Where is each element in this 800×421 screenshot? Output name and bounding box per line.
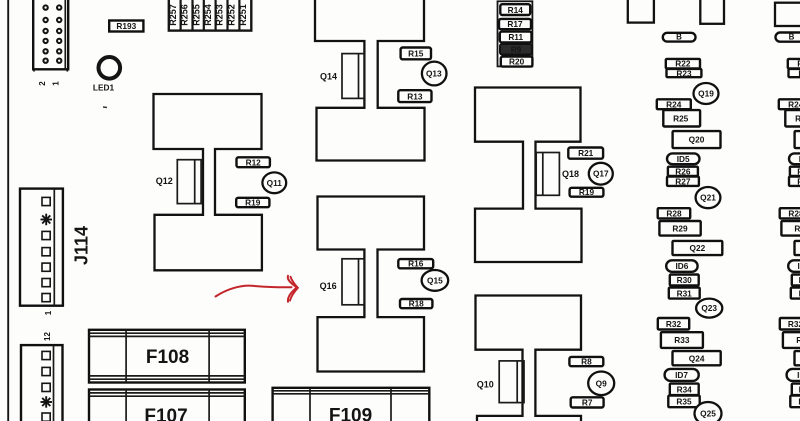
svg-text:R19: R19 xyxy=(579,187,595,197)
svg-text:1: 1 xyxy=(44,310,53,315)
svg-text:R28: R28 xyxy=(666,209,682,219)
svg-text:ID5: ID5 xyxy=(677,154,690,164)
svg-text:R21: R21 xyxy=(578,148,594,158)
svg-text:Q11: Q11 xyxy=(267,178,283,188)
svg-text:ID6: ID6 xyxy=(675,261,688,271)
svg-text:Q14: Q14 xyxy=(320,72,337,82)
svg-text:R31: R31 xyxy=(677,288,693,298)
svg-text:Q25: Q25 xyxy=(700,409,716,419)
svg-text:R25: R25 xyxy=(795,113,800,123)
svg-text:R17: R17 xyxy=(507,19,523,29)
svg-text:R32: R32 xyxy=(666,319,682,329)
svg-text:R252: R252 xyxy=(227,4,237,26)
svg-text:B: B xyxy=(789,33,795,42)
svg-text:LED1: LED1 xyxy=(93,83,115,93)
svg-text:F109: F109 xyxy=(329,406,372,421)
svg-text:R19: R19 xyxy=(245,198,261,208)
svg-text:B: B xyxy=(676,33,682,42)
svg-text:R35: R35 xyxy=(676,397,692,407)
svg-text:12: 12 xyxy=(43,332,52,341)
svg-text:R29: R29 xyxy=(794,223,800,233)
svg-text:R28: R28 xyxy=(788,209,800,219)
svg-text:1: 1 xyxy=(52,81,61,86)
svg-text:R193: R193 xyxy=(116,21,136,31)
svg-text:R9: R9 xyxy=(511,44,522,54)
svg-text:Q17: Q17 xyxy=(593,169,609,179)
svg-text:R26: R26 xyxy=(675,166,691,176)
svg-text:Q21: Q21 xyxy=(700,193,716,203)
svg-text:Q12: Q12 xyxy=(156,176,173,186)
svg-text:R22: R22 xyxy=(675,59,691,69)
svg-text:R18: R18 xyxy=(409,299,425,309)
svg-text:F107: F107 xyxy=(144,406,187,421)
svg-text:J114: J114 xyxy=(72,226,92,265)
svg-text:Q22: Q22 xyxy=(690,243,706,253)
svg-text:Q9: Q9 xyxy=(596,378,607,388)
svg-text:R253: R253 xyxy=(215,4,225,26)
svg-text:Q23: Q23 xyxy=(701,303,717,313)
svg-text:R34: R34 xyxy=(677,385,693,395)
svg-text:R256: R256 xyxy=(180,4,190,26)
svg-text:Q19: Q19 xyxy=(698,89,714,99)
svg-text:R251: R251 xyxy=(238,4,248,26)
svg-text:R23: R23 xyxy=(676,68,692,78)
svg-text:R7: R7 xyxy=(582,397,593,407)
svg-text:F108: F108 xyxy=(146,347,189,368)
svg-text:R20: R20 xyxy=(509,57,525,67)
svg-text:R13: R13 xyxy=(407,91,423,101)
svg-text:R32: R32 xyxy=(788,319,800,329)
svg-text:R14: R14 xyxy=(508,5,524,15)
svg-text:Q13: Q13 xyxy=(426,69,442,79)
svg-text:R24: R24 xyxy=(788,99,800,109)
svg-text:R30: R30 xyxy=(677,275,693,285)
svg-text:R255: R255 xyxy=(191,4,201,26)
svg-text:R16: R16 xyxy=(408,259,424,269)
svg-text:R8: R8 xyxy=(581,357,592,367)
svg-text:Q20: Q20 xyxy=(689,135,705,145)
svg-text:R27: R27 xyxy=(675,176,691,186)
svg-text:R254: R254 xyxy=(203,4,213,26)
svg-text:Q24: Q24 xyxy=(689,353,705,363)
svg-text:R25: R25 xyxy=(673,113,689,123)
svg-text:R29: R29 xyxy=(672,223,688,233)
svg-text:R33: R33 xyxy=(674,335,690,345)
svg-text:Q10: Q10 xyxy=(477,380,494,390)
svg-text:R11: R11 xyxy=(508,32,523,42)
svg-text:Q15: Q15 xyxy=(427,275,443,285)
svg-text:2: 2 xyxy=(38,81,47,86)
svg-text:ID7: ID7 xyxy=(675,370,688,380)
svg-text:Q18: Q18 xyxy=(562,169,579,179)
svg-text:R257: R257 xyxy=(168,4,178,26)
svg-text:R33: R33 xyxy=(796,335,800,345)
svg-text:R24: R24 xyxy=(666,99,682,109)
svg-text:Q16: Q16 xyxy=(320,281,337,291)
svg-text:R12: R12 xyxy=(246,157,262,167)
svg-text:R15: R15 xyxy=(408,49,424,59)
